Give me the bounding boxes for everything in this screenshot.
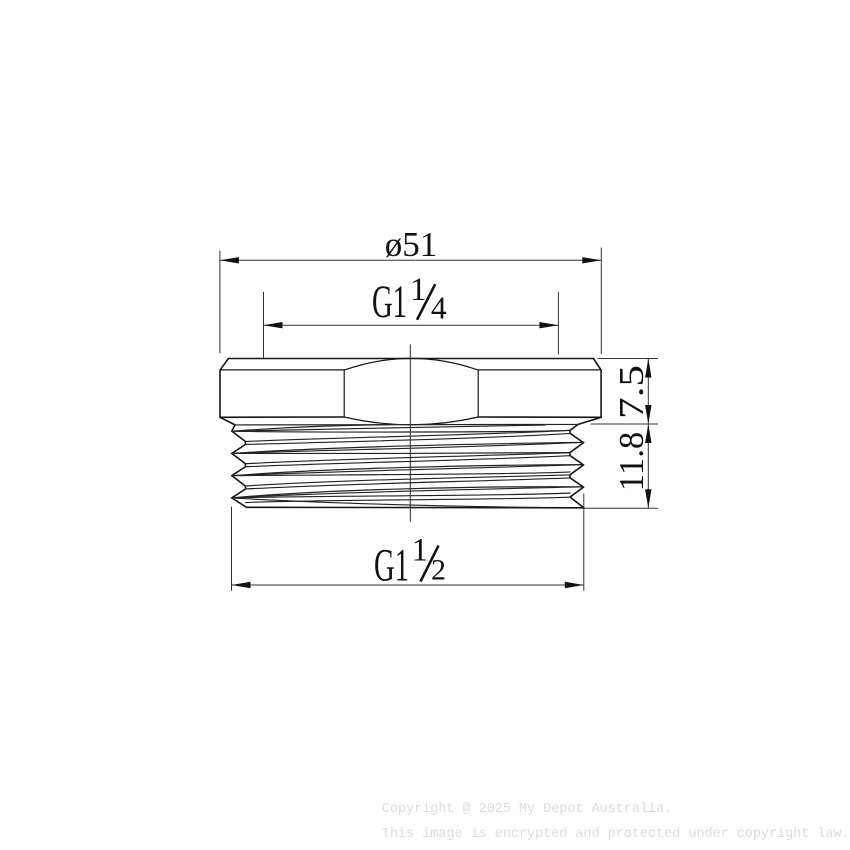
svg-text:11.8: 11.8 bbox=[612, 432, 651, 492]
svg-text:ø51: ø51 bbox=[385, 225, 438, 264]
svg-text:7.5: 7.5 bbox=[612, 365, 651, 419]
svg-text:4: 4 bbox=[431, 291, 447, 326]
svg-text:2: 2 bbox=[431, 554, 446, 587]
svg-text:This image is encrypted and pr: This image is encrypted and protected un… bbox=[382, 827, 850, 842]
svg-text:1: 1 bbox=[410, 272, 427, 308]
svg-text:G1: G1 bbox=[374, 540, 409, 591]
svg-text:1: 1 bbox=[412, 532, 429, 568]
svg-text:G1: G1 bbox=[372, 277, 407, 328]
svg-text:Copyright @ 2025 My Depot Aust: Copyright @ 2025 My Depot Australia. bbox=[382, 802, 672, 817]
